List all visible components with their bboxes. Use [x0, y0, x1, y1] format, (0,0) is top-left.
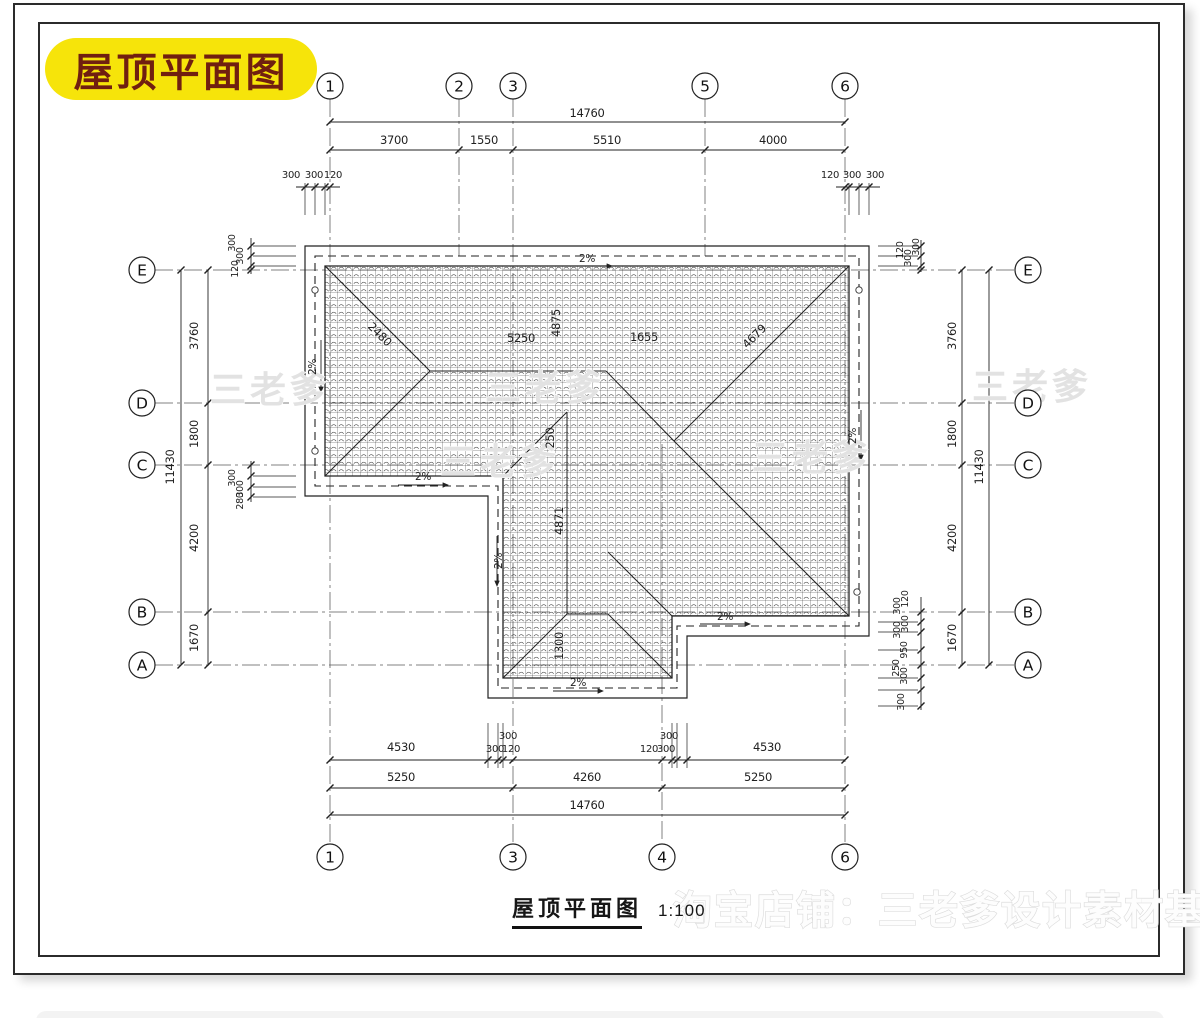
- dim-label: 1800: [187, 420, 201, 448]
- roof-plan-drawing: 三老爹三老爹三老爹三老爹三老爹淘宝店铺：三老爹设计素材基地123561346ED…: [0, 0, 1200, 1018]
- axis-bubble-5: 5: [692, 73, 718, 99]
- dim-label: 280: [235, 492, 246, 509]
- dim-label: 950: [899, 641, 910, 658]
- axis-bubble-label: E: [1023, 262, 1033, 280]
- dim-label: 120: [502, 744, 520, 755]
- axis-bubble-D: D: [129, 390, 155, 416]
- axis-bubble-label: C: [1023, 457, 1034, 475]
- watermark-text: 三老爹: [485, 368, 605, 409]
- axis-bubble-6: 6: [832, 844, 858, 870]
- dim-label: 300: [866, 170, 884, 181]
- slope-label: 2%: [847, 428, 859, 444]
- axis-bubble-label: 2: [454, 78, 464, 96]
- dim-label: 4200: [187, 524, 201, 552]
- axis-bubble-1: 1: [317, 844, 343, 870]
- dim-label: 3760: [187, 322, 201, 350]
- dim-label: 120: [324, 170, 342, 181]
- dim-label: 5250: [744, 770, 772, 784]
- dim-label: 3760: [945, 322, 959, 350]
- slope-label: 2%: [493, 553, 505, 569]
- axis-bubble-3: 3: [500, 73, 526, 99]
- dim-label: 11430: [972, 449, 986, 484]
- axis-bubble-1: 1: [317, 73, 343, 99]
- page: { "header": { "label": "屋顶平面图" }, "capti…: [0, 0, 1200, 1018]
- dim-label: 300: [305, 170, 323, 181]
- dim-label: 14760: [569, 798, 604, 812]
- slope-label: 2%: [570, 677, 586, 689]
- dim-label: 4000: [759, 133, 787, 147]
- axis-bubble-label: C: [137, 457, 148, 475]
- axis-bubble-E: E: [1015, 257, 1041, 283]
- dim-label: 14760: [569, 106, 604, 120]
- axis-bubble-C: C: [1015, 452, 1041, 478]
- caption-scale: 1:100: [658, 901, 706, 921]
- axis-bubble-E: E: [129, 257, 155, 283]
- roof-dim-label: 1300: [552, 632, 566, 660]
- axis-bubble-label: 6: [840, 78, 850, 96]
- dim-label: 300: [911, 238, 922, 255]
- dim-label: 1550: [470, 133, 498, 147]
- dim-label: 300: [899, 667, 910, 684]
- axis-bubble-6: 6: [832, 73, 858, 99]
- dim-label: 5510: [593, 133, 621, 147]
- dim-label: 120: [640, 744, 658, 755]
- dim-label: 300: [896, 693, 907, 710]
- dim-label: 300: [282, 170, 300, 181]
- axis-bubble-label: 1: [325, 849, 335, 867]
- dim-label: 1670: [945, 624, 959, 652]
- axis-bubble-label: 6: [840, 849, 850, 867]
- dim-label: 120: [230, 260, 241, 277]
- dim-label: 4260: [573, 770, 601, 784]
- drawing-caption: 屋顶平面图 1:100: [512, 891, 706, 929]
- roof-dim-label: 1655: [630, 330, 658, 344]
- watermark-text: 三老爹: [210, 370, 330, 411]
- axis-bubble-label: B: [1023, 604, 1034, 622]
- slope-label: 2%: [415, 471, 431, 483]
- roof-dim-label: 4875: [549, 309, 563, 337]
- axis-bubble-A: A: [1015, 652, 1041, 678]
- dim-label: 5250: [387, 770, 415, 784]
- dim-label: 300: [499, 731, 517, 742]
- axis-bubble-label: A: [137, 657, 148, 675]
- axis-bubble-label: D: [136, 395, 148, 413]
- axis-bubble-D: D: [1015, 390, 1041, 416]
- axis-bubble-4: 4: [649, 844, 675, 870]
- axis-bubble-B: B: [1015, 599, 1041, 625]
- slope-label: 2%: [307, 359, 319, 375]
- axis-bubble-label: D: [1022, 395, 1034, 413]
- slope-label: 2%: [579, 253, 595, 265]
- dim-label: 4530: [753, 740, 781, 754]
- axis-bubble-label: 3: [508, 849, 518, 867]
- axis-bubble-label: 5: [700, 78, 710, 96]
- highlight-title-pill: 屋顶平面图: [45, 38, 317, 100]
- dim-label: 1670: [187, 624, 201, 652]
- highlight-title-text: 屋顶平面图: [74, 40, 289, 98]
- axis-bubble-B: B: [129, 599, 155, 625]
- dim-label: 300: [892, 597, 903, 614]
- axis-bubble-C: C: [129, 452, 155, 478]
- dim-label: 300: [892, 621, 903, 638]
- dim-label: 300: [843, 170, 861, 181]
- next-image-card-edge: [36, 1011, 1164, 1018]
- dim-label: 300: [660, 731, 678, 742]
- axis-bubble-label: E: [137, 262, 147, 280]
- roof-dim-label: 250: [543, 427, 557, 448]
- axis-bubble-3: 3: [500, 844, 526, 870]
- dim-label: 4530: [387, 740, 415, 754]
- axis-bubble-2: 2: [446, 73, 472, 99]
- dim-label: 1800: [945, 420, 959, 448]
- watermark-shop-text: 淘宝店铺：三老爹设计素材基地: [673, 889, 1200, 934]
- axis-bubble-label: A: [1023, 657, 1034, 675]
- dim-label: 4200: [945, 524, 959, 552]
- axis-bubble-label: 3: [508, 78, 518, 96]
- axis-bubble-A: A: [129, 652, 155, 678]
- dim-label: 300: [657, 744, 675, 755]
- roof-dim-label: 5250: [507, 331, 535, 345]
- watermark-text: 三老爹: [440, 442, 560, 483]
- dim-label: 11430: [163, 449, 177, 484]
- axis-bubble-label: 1: [325, 78, 335, 96]
- axis-bubble-label: B: [137, 604, 148, 622]
- caption-title: 屋顶平面图: [512, 891, 642, 929]
- dim-label: 3700: [380, 133, 408, 147]
- dim-label: 120: [821, 170, 839, 181]
- roof-dim-label: 4871: [552, 507, 566, 535]
- axis-bubble-label: 4: [657, 849, 667, 867]
- slope-label: 2%: [717, 611, 733, 623]
